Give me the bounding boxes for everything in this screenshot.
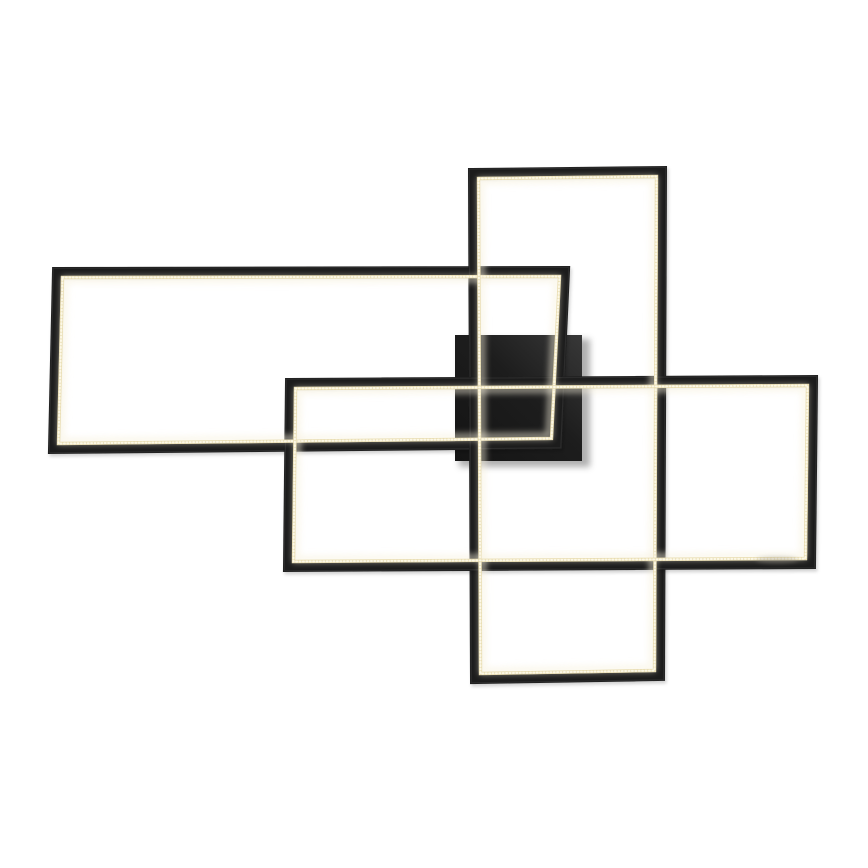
product-photo-canvas bbox=[0, 0, 868, 868]
photo-smudge-artifact bbox=[756, 557, 798, 564]
led-ceiling-light-fixture bbox=[0, 0, 868, 868]
frame-group bbox=[49, 167, 817, 683]
led-strip-group bbox=[59, 177, 808, 674]
